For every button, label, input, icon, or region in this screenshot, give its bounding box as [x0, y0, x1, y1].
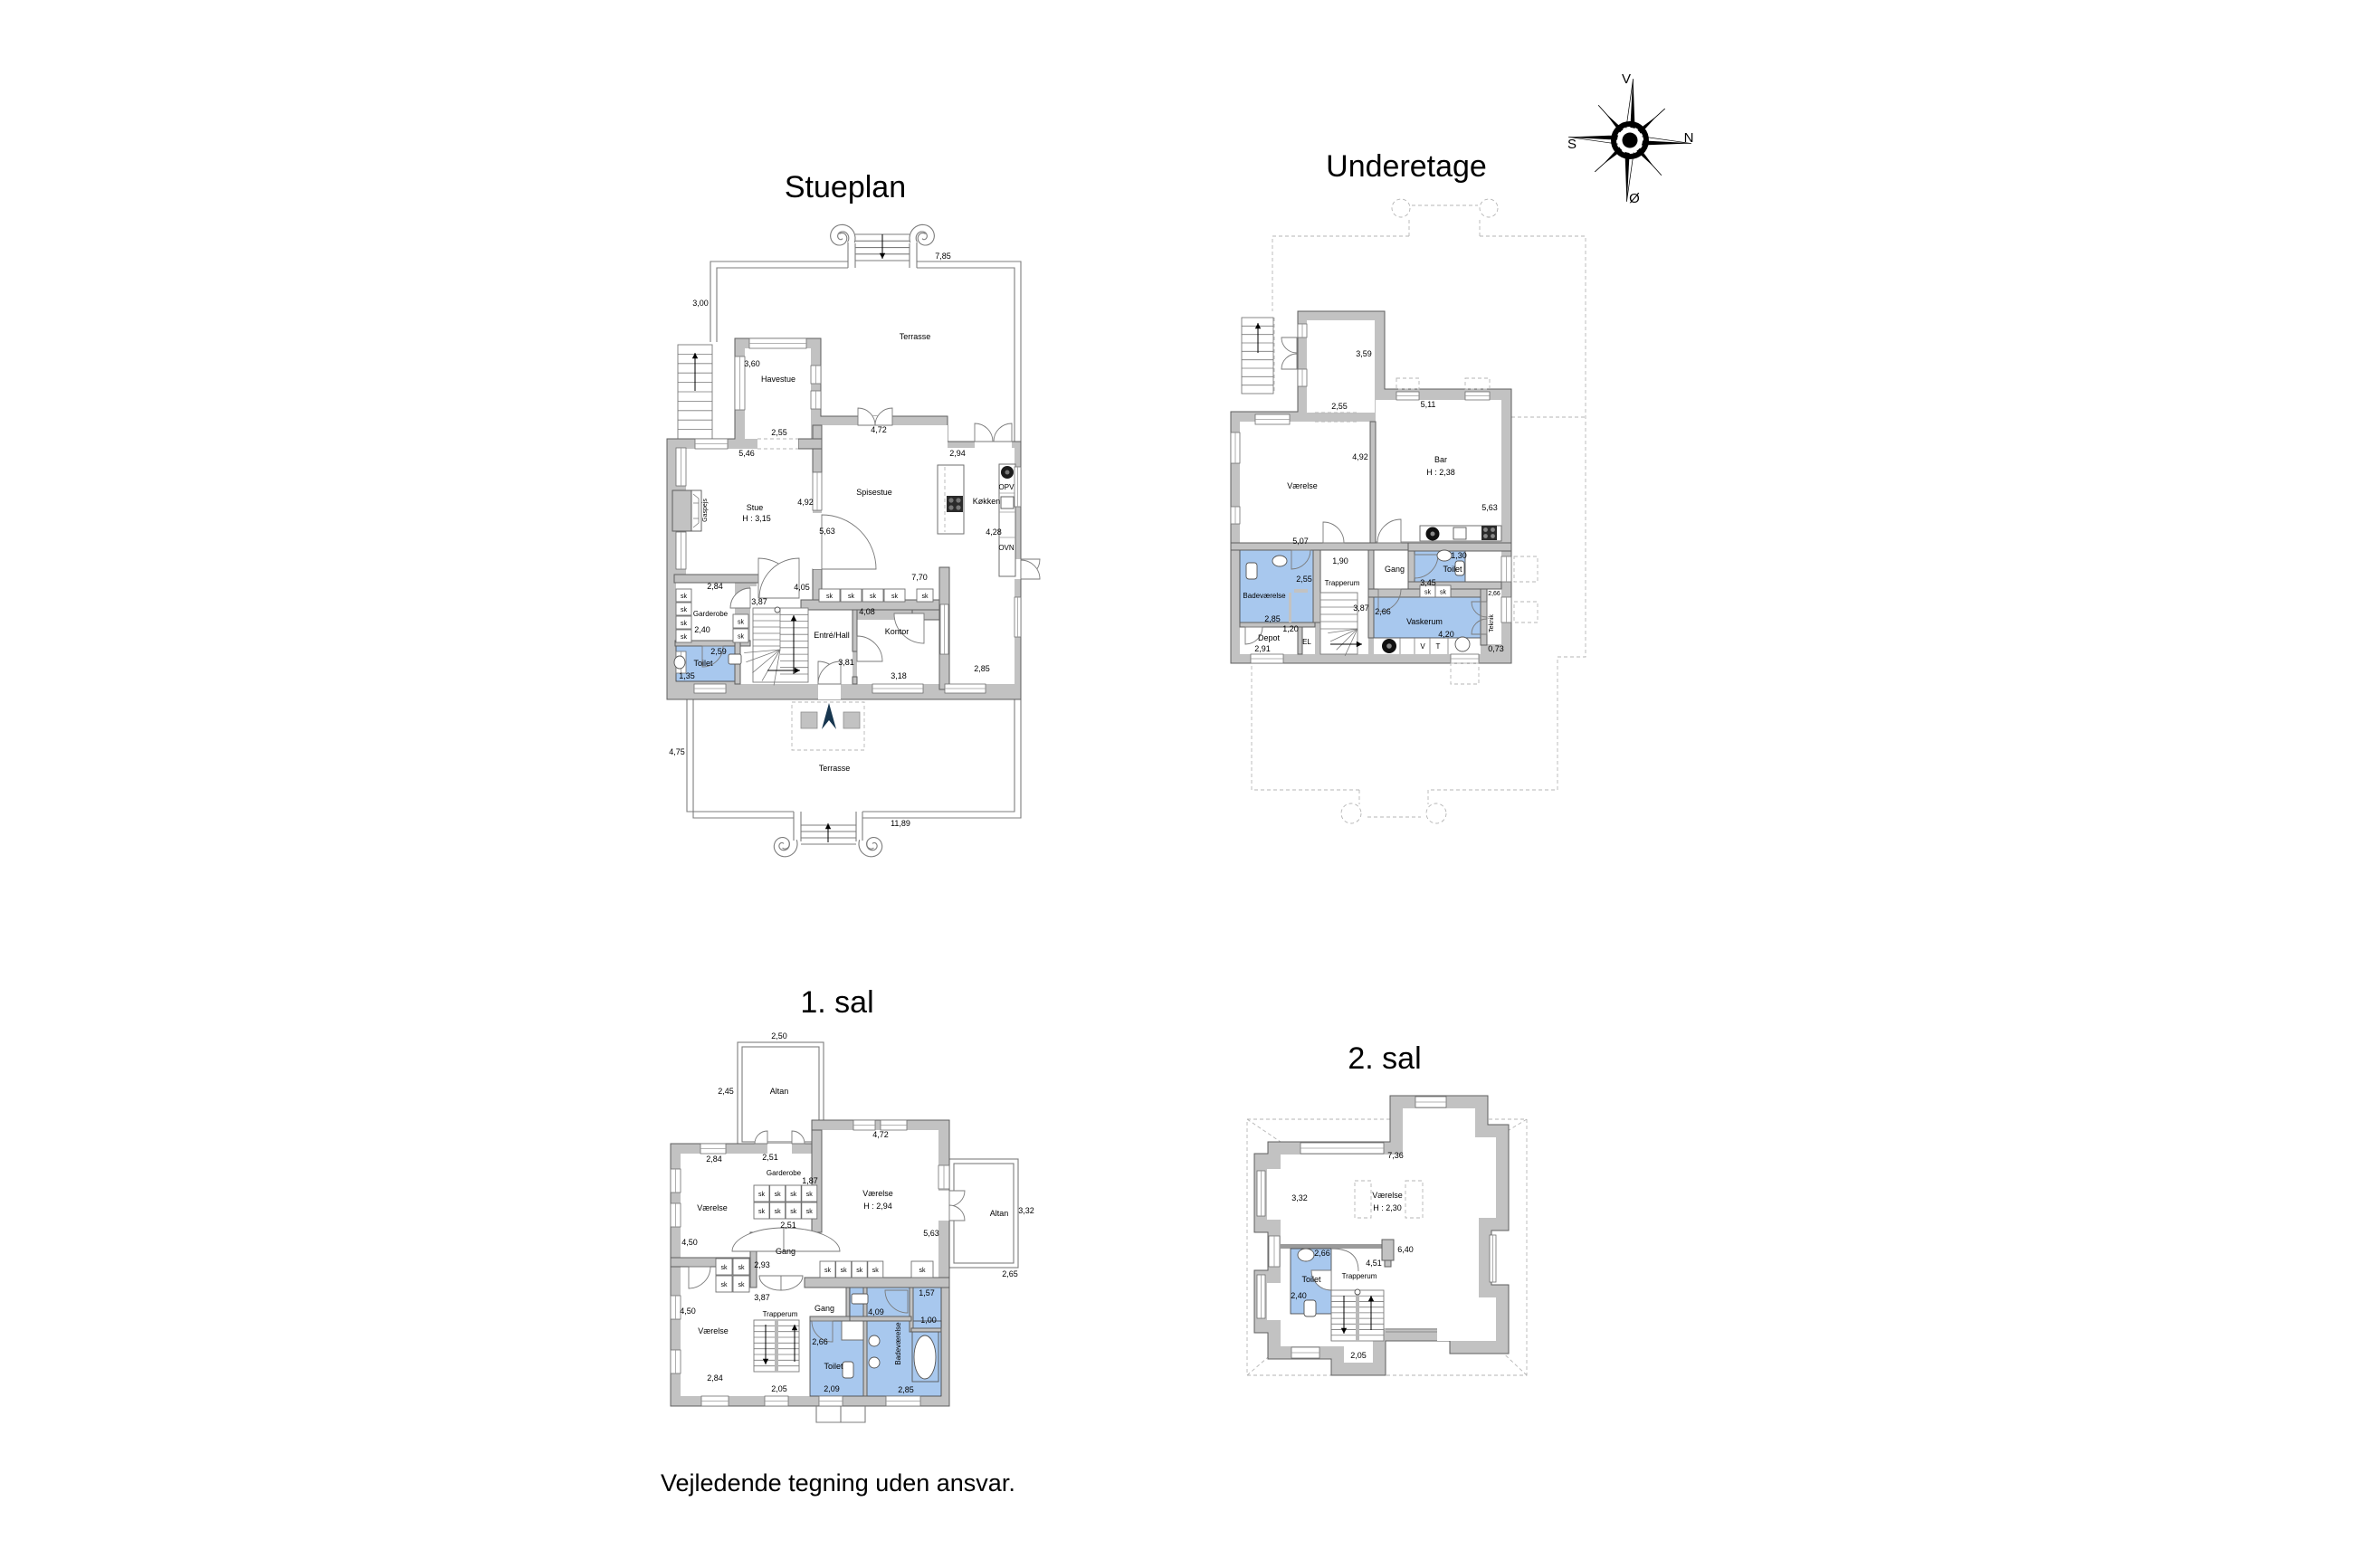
- svg-text:2,93: 2,93: [754, 1260, 770, 1269]
- svg-text:Entré/Hall: Entré/Hall: [814, 631, 850, 640]
- svg-text:2. sal: 2. sal: [1348, 1041, 1421, 1076]
- svg-text:sk: sk: [824, 1268, 832, 1274]
- svg-text:H : 2,30: H : 2,30: [1373, 1203, 1402, 1212]
- svg-text:Værelse: Værelse: [862, 1189, 893, 1198]
- svg-text:2,85: 2,85: [974, 664, 990, 673]
- svg-text:sk: sk: [758, 1192, 766, 1198]
- svg-text:1,30: 1,30: [1451, 551, 1467, 560]
- svg-text:3,18: 3,18: [891, 671, 907, 680]
- svg-text:Værelse: Værelse: [697, 1203, 728, 1212]
- svg-text:4,05: 4,05: [794, 583, 810, 592]
- svg-text:Spisestue: Spisestue: [856, 488, 892, 497]
- svg-text:sk: sk: [841, 1268, 848, 1274]
- svg-text:2,66: 2,66: [1488, 591, 1500, 597]
- svg-text:sk: sk: [775, 1192, 782, 1198]
- svg-text:2,91: 2,91: [1254, 644, 1271, 653]
- svg-text:sk: sk: [738, 620, 745, 626]
- svg-text:3,00: 3,00: [692, 299, 709, 308]
- svg-text:sk: sk: [856, 1268, 863, 1274]
- svg-text:2,40: 2,40: [1291, 1291, 1307, 1300]
- svg-text:2,94: 2,94: [949, 449, 966, 458]
- svg-text:4,09: 4,09: [868, 1307, 884, 1316]
- svg-text:Kontor: Kontor: [885, 627, 910, 636]
- svg-text:5,63: 5,63: [1481, 503, 1498, 512]
- svg-text:Gang: Gang: [776, 1247, 795, 1256]
- svg-text:Værelse: Værelse: [698, 1326, 729, 1335]
- svg-text:Ø: Ø: [1629, 191, 1640, 206]
- svg-text:sk: sk: [891, 594, 899, 600]
- svg-text:sk: sk: [870, 594, 877, 600]
- svg-text:sk: sk: [1424, 590, 1432, 596]
- svg-text:sk: sk: [681, 634, 688, 641]
- svg-text:Værelse: Værelse: [1372, 1191, 1403, 1200]
- svg-text:3,87: 3,87: [754, 1293, 770, 1302]
- svg-text:sk: sk: [775, 1209, 782, 1215]
- svg-text:2,84: 2,84: [707, 1373, 723, 1383]
- svg-text:OVN: OVN: [998, 544, 1015, 552]
- svg-text:2,51: 2,51: [780, 1221, 796, 1230]
- svg-text:H : 2,94: H : 2,94: [863, 1202, 892, 1211]
- svg-text:Trapperum: Trapperum: [1342, 1272, 1377, 1280]
- svg-text:Toilet: Toilet: [693, 659, 713, 668]
- svg-text:sk: sk: [790, 1209, 797, 1215]
- svg-text:1,57: 1,57: [919, 1288, 935, 1297]
- svg-text:Køkken: Køkken: [973, 497, 1001, 506]
- svg-text:2,59: 2,59: [710, 647, 727, 656]
- svg-text:Trapperum: Trapperum: [1325, 579, 1360, 587]
- svg-text:4,50: 4,50: [680, 1307, 696, 1316]
- svg-text:Terrasse: Terrasse: [819, 764, 851, 773]
- svg-text:Garderobe: Garderobe: [693, 610, 729, 618]
- svg-text:2,05: 2,05: [1350, 1351, 1367, 1360]
- svg-text:sk: sk: [872, 1268, 880, 1274]
- svg-text:sk: sk: [738, 634, 745, 641]
- svg-text:7,85: 7,85: [935, 252, 951, 261]
- svg-text:2,40: 2,40: [694, 625, 710, 634]
- svg-text:5,11: 5,11: [1421, 400, 1436, 409]
- svg-text:H : 3,15: H : 3,15: [742, 514, 771, 523]
- svg-text:sk: sk: [806, 1209, 814, 1215]
- svg-text:sk: sk: [758, 1209, 766, 1215]
- svg-text:1,20: 1,20: [1282, 624, 1299, 633]
- svg-text:4,72: 4,72: [871, 425, 887, 434]
- svg-text:sk: sk: [922, 594, 929, 600]
- svg-text:V: V: [1420, 642, 1425, 651]
- svg-text:4,92: 4,92: [1352, 452, 1368, 461]
- svg-text:sk: sk: [919, 1268, 927, 1274]
- svg-text:2,65: 2,65: [1002, 1269, 1018, 1278]
- svg-text:Vejledende tegning uden ansvar: Vejledende tegning uden ansvar.: [661, 1469, 1015, 1497]
- svg-text:T: T: [1436, 642, 1441, 651]
- svg-text:4,51: 4,51: [1366, 1259, 1382, 1268]
- svg-text:sk: sk: [738, 1265, 746, 1271]
- svg-text:7,70: 7,70: [911, 573, 928, 582]
- svg-text:2,66: 2,66: [1375, 607, 1391, 616]
- svg-text:Toilet: Toilet: [1301, 1275, 1321, 1284]
- svg-text:2,05: 2,05: [771, 1384, 787, 1393]
- svg-text:2,55: 2,55: [1296, 575, 1312, 584]
- svg-text:sk: sk: [681, 594, 688, 600]
- svg-text:sk: sk: [1440, 590, 1447, 596]
- svg-text:6,40: 6,40: [1397, 1245, 1414, 1254]
- svg-text:Stue: Stue: [747, 503, 764, 512]
- svg-text:Badeværelse: Badeværelse: [894, 1322, 902, 1365]
- svg-text:Stueplan: Stueplan: [785, 170, 906, 204]
- svg-text:5,07: 5,07: [1292, 537, 1309, 546]
- svg-text:4,72: 4,72: [872, 1130, 889, 1139]
- svg-text:Værelse: Værelse: [1287, 481, 1318, 490]
- svg-text:Gang: Gang: [814, 1304, 834, 1313]
- svg-text:3,81: 3,81: [838, 658, 854, 667]
- svg-text:sk: sk: [738, 1282, 746, 1288]
- svg-text:Underetage: Underetage: [1326, 149, 1487, 184]
- svg-text:2,66: 2,66: [1314, 1249, 1330, 1258]
- svg-text:1,90: 1,90: [1332, 556, 1348, 565]
- svg-text:5,46: 5,46: [738, 449, 755, 458]
- svg-text:EL: EL: [1302, 638, 1311, 646]
- svg-text:1. sal: 1. sal: [800, 985, 873, 1020]
- svg-text:3,87: 3,87: [751, 597, 767, 606]
- svg-text:Trapperum: Trapperum: [763, 1310, 798, 1318]
- svg-text:Gang: Gang: [1385, 565, 1405, 574]
- svg-text:Badeværelse: Badeværelse: [1243, 592, 1286, 600]
- svg-text:1,87: 1,87: [802, 1176, 818, 1185]
- svg-text:1,35: 1,35: [679, 671, 695, 680]
- svg-text:2,84: 2,84: [706, 1155, 722, 1164]
- svg-text:Bar: Bar: [1434, 455, 1447, 464]
- svg-text:2,50: 2,50: [771, 1031, 787, 1041]
- svg-text:sk: sk: [681, 621, 688, 627]
- svg-text:0,73: 0,73: [1488, 644, 1504, 653]
- svg-text:Toilet: Toilet: [1443, 565, 1462, 574]
- svg-text:sk: sk: [721, 1282, 729, 1288]
- svg-text:2,51: 2,51: [762, 1153, 778, 1162]
- svg-text:Toilet: Toilet: [824, 1362, 843, 1371]
- svg-text:3,32: 3,32: [1018, 1206, 1034, 1215]
- svg-text:3,32: 3,32: [1291, 1193, 1308, 1202]
- svg-text:Havestue: Havestue: [761, 375, 795, 384]
- svg-text:2,09: 2,09: [824, 1384, 840, 1393]
- svg-text:2,55: 2,55: [771, 428, 787, 437]
- svg-text:4,08: 4,08: [859, 607, 875, 616]
- svg-text:Teknik: Teknik: [1489, 614, 1495, 632]
- svg-text:Altan: Altan: [990, 1209, 1009, 1218]
- svg-text:sk: sk: [806, 1192, 814, 1198]
- svg-text:3,60: 3,60: [744, 359, 760, 368]
- svg-text:Terrasse: Terrasse: [900, 332, 931, 341]
- svg-text:3,59: 3,59: [1356, 349, 1372, 358]
- svg-text:Altan: Altan: [770, 1087, 789, 1096]
- svg-text:Gaspejs: Gaspejs: [702, 499, 709, 522]
- svg-text:2,85: 2,85: [1264, 614, 1281, 623]
- svg-text:V: V: [1622, 71, 1631, 87]
- svg-text:4,75: 4,75: [669, 747, 685, 756]
- svg-text:2,55: 2,55: [1331, 402, 1348, 411]
- svg-text:sk: sk: [826, 594, 834, 600]
- svg-text:OPV: OPV: [999, 483, 1015, 491]
- svg-text:2,85: 2,85: [898, 1385, 914, 1394]
- svg-text:5,63: 5,63: [923, 1229, 939, 1238]
- svg-text:sk: sk: [790, 1192, 797, 1198]
- svg-text:sk: sk: [848, 594, 855, 600]
- svg-text:Garderobe: Garderobe: [767, 1169, 802, 1177]
- svg-text:2,84: 2,84: [707, 582, 723, 591]
- svg-text:Depot: Depot: [1258, 633, 1281, 642]
- svg-text:3,45: 3,45: [1420, 578, 1436, 587]
- svg-text:sk: sk: [681, 607, 688, 613]
- svg-text:2,66: 2,66: [812, 1337, 828, 1346]
- svg-text:H : 2,38: H : 2,38: [1426, 468, 1455, 477]
- svg-text:S: S: [1567, 137, 1577, 152]
- svg-text:sk: sk: [721, 1265, 729, 1271]
- svg-text:3,87: 3,87: [1353, 603, 1369, 613]
- svg-text:11,89: 11,89: [891, 819, 910, 828]
- svg-text:Vaskerum: Vaskerum: [1406, 617, 1443, 626]
- svg-text:7,36: 7,36: [1387, 1151, 1404, 1160]
- svg-text:4,50: 4,50: [681, 1238, 698, 1247]
- svg-text:4,20: 4,20: [1438, 630, 1454, 639]
- svg-text:4,28: 4,28: [986, 527, 1002, 537]
- svg-text:4,92: 4,92: [797, 498, 814, 507]
- svg-text:N: N: [1684, 130, 1694, 146]
- svg-text:5,63: 5,63: [819, 527, 835, 536]
- svg-text:1,00: 1,00: [920, 1316, 937, 1325]
- svg-text:2,45: 2,45: [718, 1087, 734, 1096]
